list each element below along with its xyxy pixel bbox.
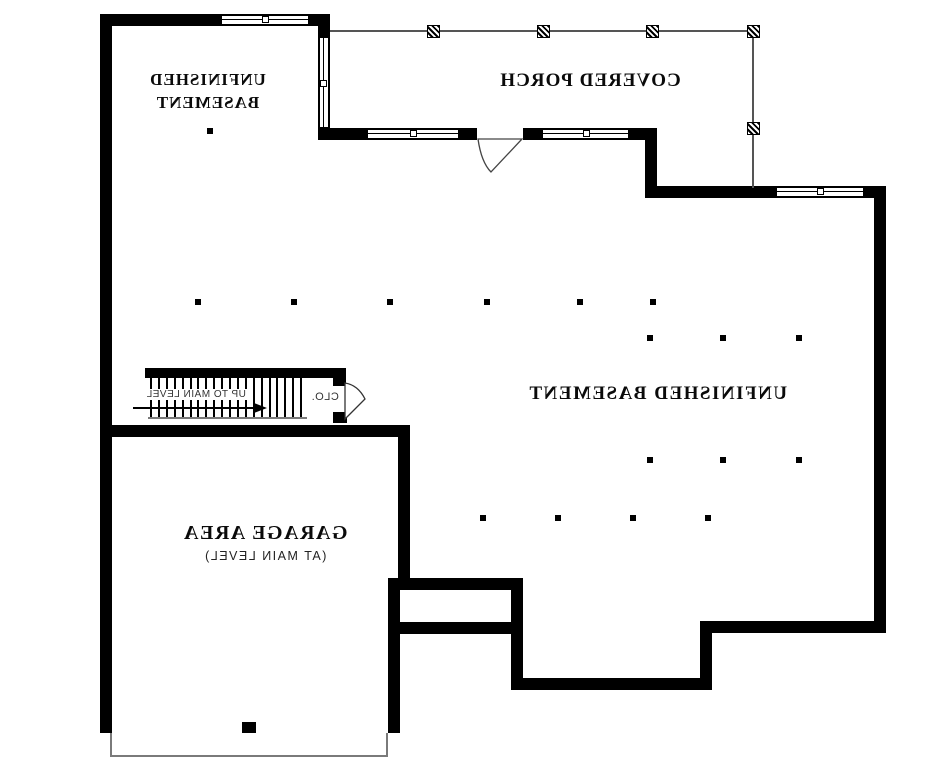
porch-post xyxy=(537,25,550,38)
stair-tread xyxy=(284,378,286,419)
garage-door-post xyxy=(242,722,256,733)
column-dot xyxy=(577,299,583,305)
stair-tread xyxy=(269,378,271,419)
column-dot xyxy=(796,335,802,341)
column-dot xyxy=(650,299,656,305)
column-dot xyxy=(195,299,201,305)
porch-post xyxy=(427,25,440,38)
stair-tread xyxy=(300,378,302,419)
label-line1: UNFINISHED xyxy=(105,68,310,91)
column-dot xyxy=(484,299,490,305)
porch-post xyxy=(747,25,760,38)
porch-post xyxy=(646,25,659,38)
window-top xyxy=(222,14,308,26)
wall-garage-right-upper xyxy=(398,437,410,578)
garage-door-side-right xyxy=(386,733,388,757)
door-swing-closet xyxy=(344,379,370,423)
wall-notch-left xyxy=(511,590,523,678)
label-up-to-main-level: UP TO MAIN LEVEL xyxy=(128,389,264,400)
column-dot xyxy=(480,515,486,521)
label-unfinished-basement-main: UNFINISHED BASEMENT xyxy=(505,383,810,405)
porch-edge-right xyxy=(752,30,754,188)
column-dot xyxy=(720,335,726,341)
column-dot xyxy=(647,335,653,341)
label-up-to-main-level-text: UP TO MAIN LEVEL xyxy=(145,389,247,400)
column-dot xyxy=(796,457,802,463)
wall-chase-bottom xyxy=(388,622,511,634)
label-garage-sub: (AT MAIN LEVEL) xyxy=(145,549,385,563)
column-dot xyxy=(291,299,297,305)
window-upper-room-right xyxy=(318,38,330,127)
wall-bottom-right xyxy=(700,621,886,633)
window-porch-right xyxy=(543,128,628,140)
stair-arrow-head xyxy=(254,403,267,413)
label-unfinished-basement-upper: UNFINISHED BASEMENT xyxy=(105,68,310,114)
garage-door-side-left xyxy=(110,733,112,757)
door-swing-front xyxy=(470,128,540,183)
wall-garage-top xyxy=(100,425,410,437)
wall-chase-top xyxy=(388,578,523,590)
column-dot xyxy=(387,299,393,305)
label-line2: BASEMENT xyxy=(105,91,310,114)
wall-right xyxy=(874,198,886,633)
label-covered-porch: COVERED PORCH xyxy=(440,70,740,92)
stair-bottom-line xyxy=(148,417,307,419)
stair-top-wall xyxy=(145,368,345,378)
stair-arrow-line xyxy=(133,407,255,409)
wall-step-vertical xyxy=(645,140,657,198)
column-dot xyxy=(207,128,213,134)
window-porch-left xyxy=(368,128,458,140)
column-dot xyxy=(555,515,561,521)
wall-bottom-middle xyxy=(511,678,712,690)
wall-garage-right-lower xyxy=(388,590,400,733)
column-dot xyxy=(630,515,636,521)
column-dot xyxy=(647,457,653,463)
label-closet: CLO. xyxy=(303,391,347,403)
floor-plan: UNFINISHED BASEMENT COVERED PORCH UNFINI… xyxy=(0,0,950,779)
label-garage-area: GARAGE AREA xyxy=(145,522,385,545)
column-dot xyxy=(705,515,711,521)
porch-post xyxy=(747,122,760,135)
stair-tread xyxy=(276,378,278,419)
stair-tread xyxy=(292,378,294,419)
garage-door-line xyxy=(110,755,388,757)
wall-left xyxy=(100,14,112,733)
window-right-wing xyxy=(777,186,863,198)
column-dot xyxy=(720,457,726,463)
